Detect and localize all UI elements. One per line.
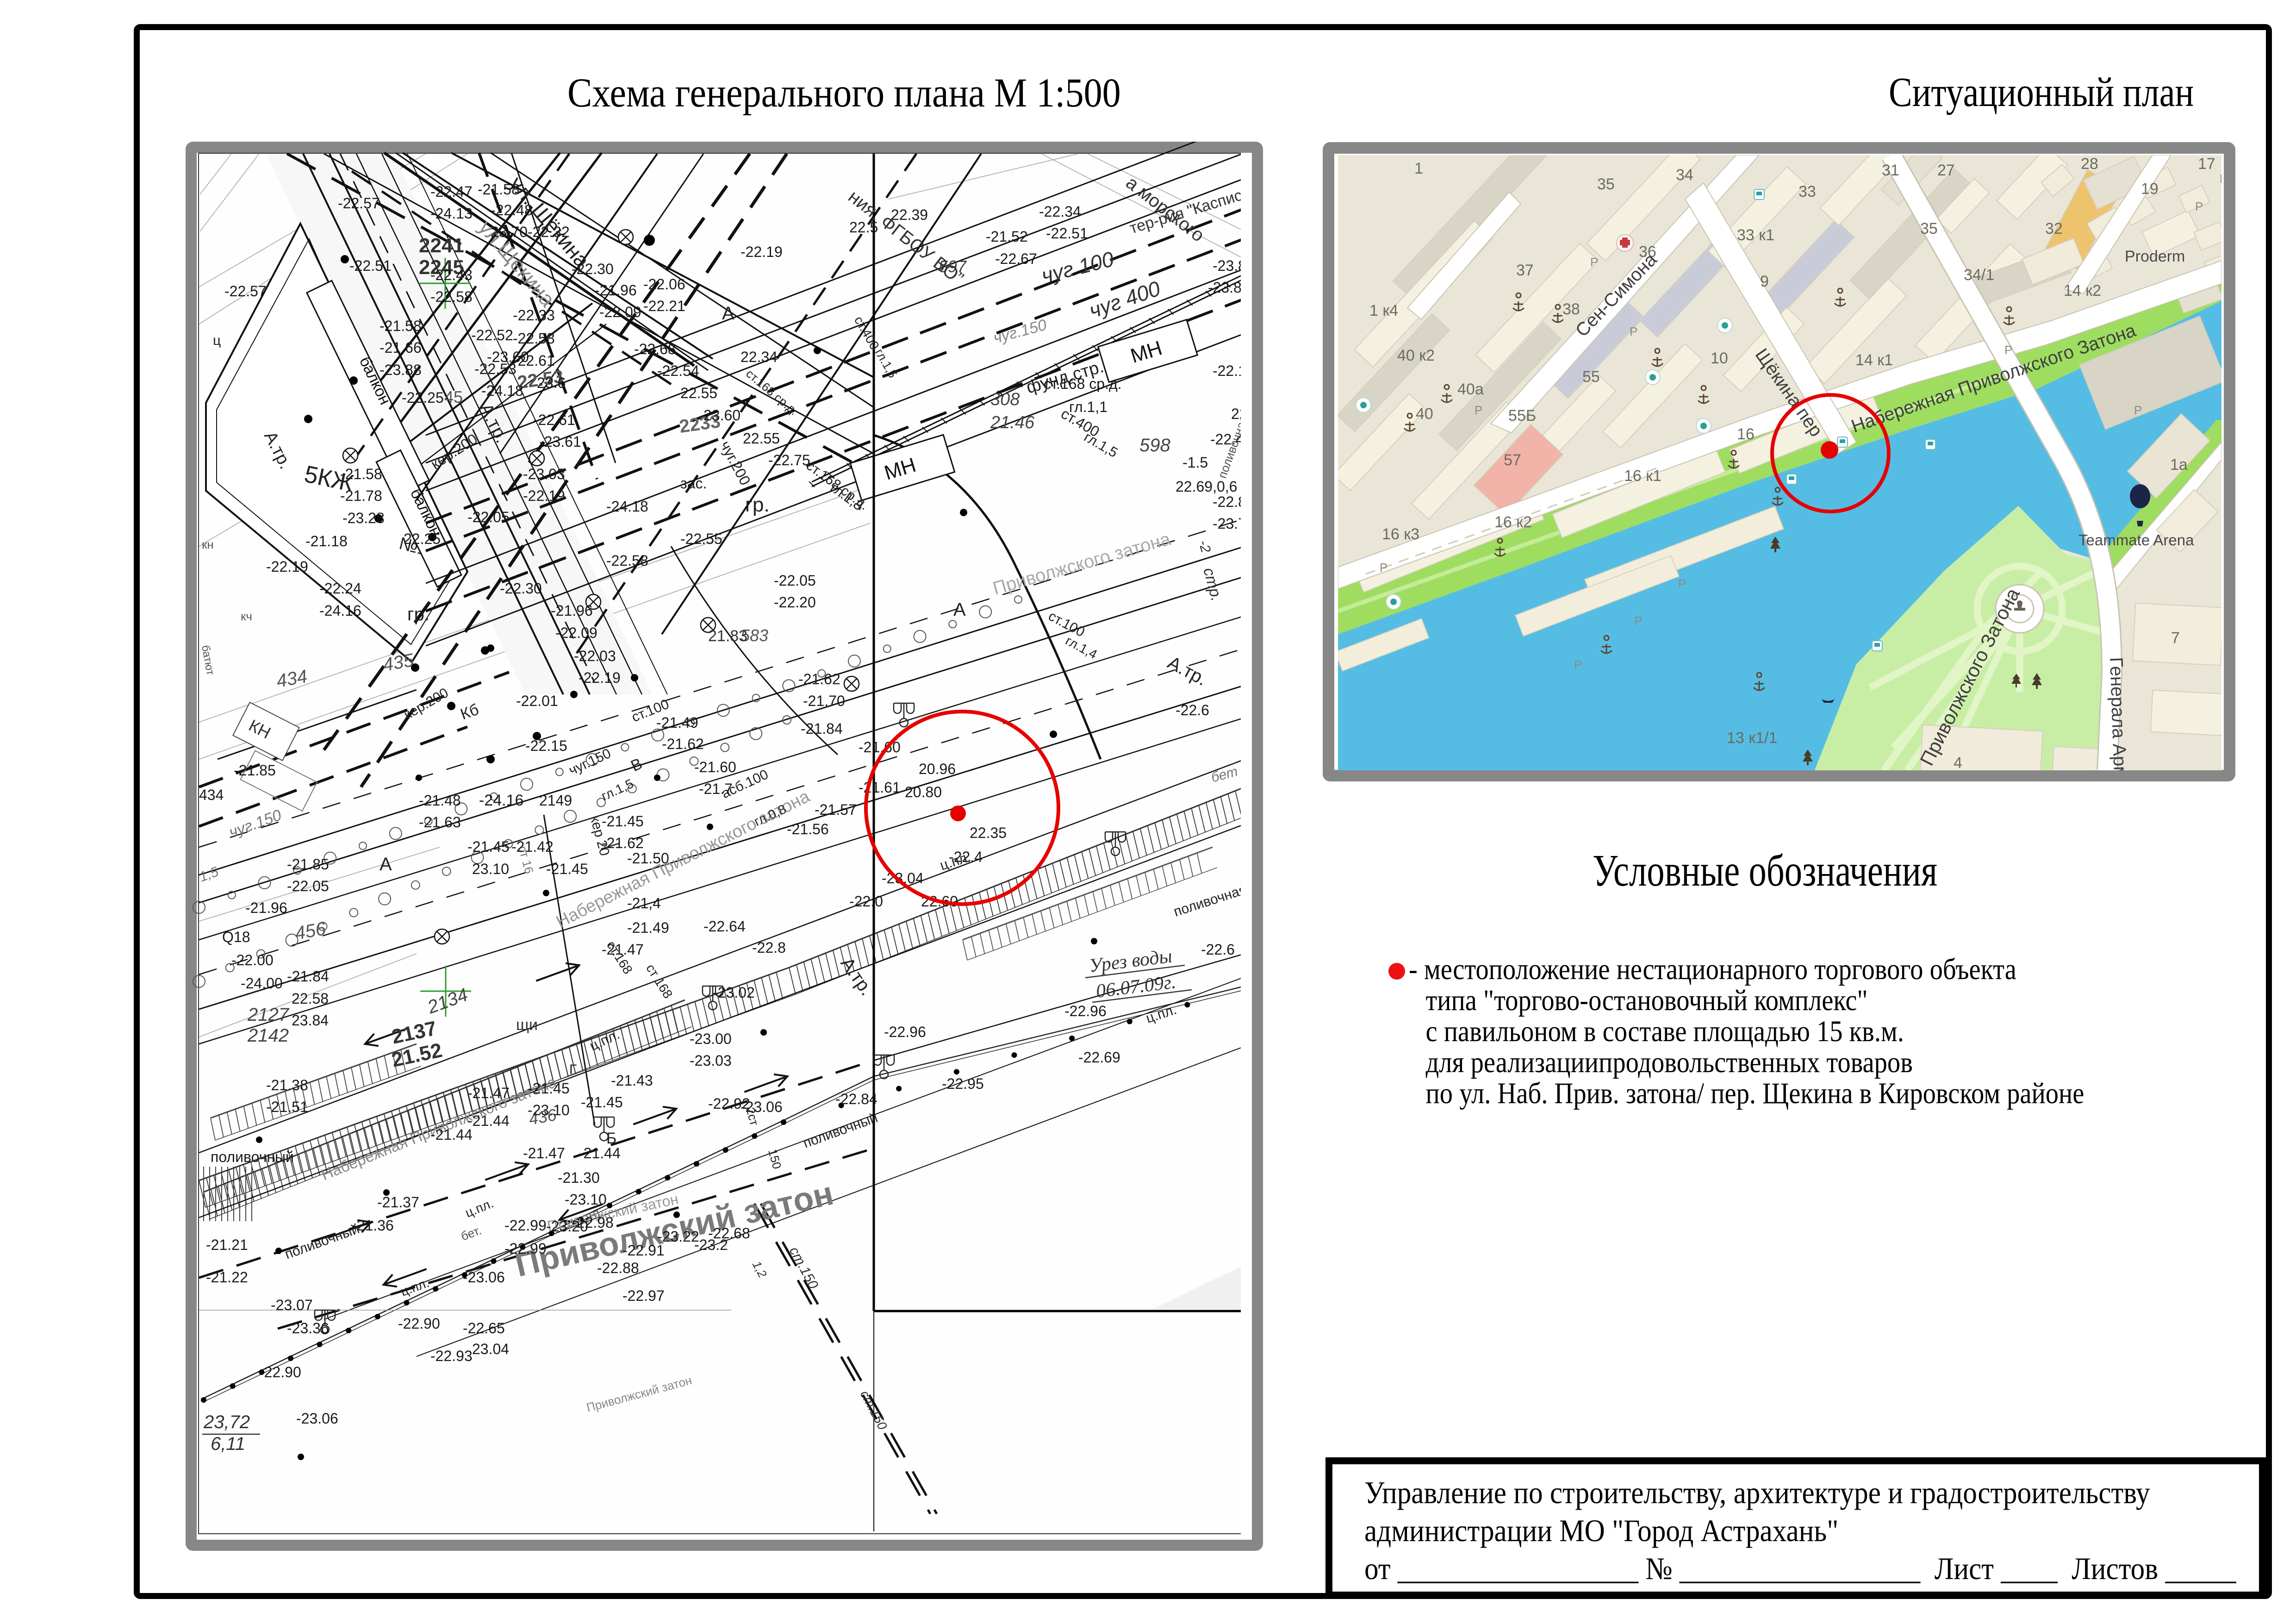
svg-text:P: P (2134, 403, 2142, 417)
svg-text:-21.45: -21.45 (528, 1080, 570, 1097)
svg-text:-22.67: -22.67 (995, 250, 1037, 267)
svg-text:22.35: 22.35 (970, 824, 1007, 841)
svg-text:31: 31 (1882, 162, 1899, 179)
svg-text:кн: кн (202, 537, 214, 551)
svg-text:-21.85: -21.85 (234, 762, 276, 779)
svg-text:13 к1/1: 13 к1/1 (1727, 729, 1777, 747)
svg-text:34/1: 34/1 (1964, 266, 1994, 284)
svg-text:P: P (2220, 172, 2221, 186)
svg-text:16 к3: 16 к3 (1382, 525, 1419, 543)
svg-text:434: 434 (199, 787, 224, 803)
svg-text:16 к2: 16 к2 (1494, 513, 1532, 531)
svg-text:-23.36: -23.36 (287, 1320, 329, 1337)
svg-text:поливочный: поливочный (211, 1149, 294, 1165)
svg-text:22.55: 22.55 (743, 430, 780, 447)
svg-text:1 к4: 1 к4 (1369, 302, 1398, 319)
svg-text:-21.66: -21.66 (380, 339, 422, 356)
svg-text:-21.50: -21.50 (627, 850, 669, 867)
svg-text:-22.58: -22.58 (430, 288, 473, 305)
svg-text:-23.06: -23.06 (740, 1099, 783, 1115)
svg-text:-23.77: -23.77 (1213, 515, 1241, 532)
svg-text:-21.42: -21.42 (511, 838, 554, 855)
svg-text:-21.45: -21.45 (581, 1094, 623, 1111)
svg-text:-21.62: -21.62 (662, 736, 704, 752)
svg-text:14 к2: 14 к2 (2064, 282, 2101, 300)
svg-text:33: 33 (1798, 183, 1816, 200)
svg-text:-22.21: -22.21 (643, 298, 685, 314)
svg-text:-21.45: -21.45 (546, 861, 588, 877)
svg-text:-21.56: -21.56 (787, 821, 829, 837)
svg-text:16: 16 (1737, 425, 1755, 443)
svg-text:27: 27 (1937, 162, 1955, 179)
svg-text:P: P (1574, 658, 1582, 672)
svg-text:-22.69: -22.69 (1078, 1049, 1120, 1066)
svg-text:-23.2: -23.2 (694, 1237, 728, 1253)
svg-text:-21.96: -21.96 (245, 899, 287, 916)
svg-text:-22.87: -22.87 (1213, 493, 1241, 510)
svg-text:гл.1,1: гл.1,1 (1069, 399, 1108, 415)
svg-text:-22.84: -22.84 (835, 1091, 877, 1107)
svg-text:-22.57: -22.57 (224, 283, 267, 300)
svg-text:-22.19: -22.19 (579, 669, 621, 686)
svg-text:33 к1: 33 к1 (1737, 226, 1774, 244)
svg-text:P: P (1634, 614, 1642, 628)
svg-text:-21.38: -21.38 (266, 1077, 308, 1093)
svg-text:-22.25: -22.25 (402, 389, 444, 406)
svg-text:ст.168 ср.д.: ст.168 ср.д. (1044, 375, 1122, 392)
svg-text:32: 32 (2045, 220, 2063, 237)
svg-text:35: 35 (1597, 175, 1615, 193)
svg-text:-21.58: -21.58 (478, 181, 520, 198)
svg-text:-21.43: -21.43 (611, 1072, 653, 1089)
svg-text:-21.18: -21.18 (305, 533, 348, 550)
svg-text:-22.19: -22.19 (523, 487, 565, 504)
svg-text:-22.90: -22.90 (259, 1364, 301, 1380)
svg-text:-21.62: -21.62 (602, 835, 644, 851)
svg-text:-22.30: -22.30 (500, 580, 542, 597)
svg-text:-21.37: -21.37 (377, 1194, 419, 1211)
svg-text:1а: 1а (2170, 456, 2188, 474)
svg-text:-22.51: -22.51 (1046, 225, 1088, 242)
svg-text:-21.7: -21.7 (699, 781, 733, 797)
svg-text:22.5: 22.5 (849, 219, 878, 236)
svg-text:P: P (1380, 561, 1388, 575)
svg-text:-21.52: -21.52 (986, 228, 1028, 245)
svg-text:-21.44: -21.44 (467, 1112, 510, 1129)
svg-text:23.60: 23.60 (703, 407, 740, 424)
svg-text:-22.51: -22.51 (349, 257, 392, 274)
svg-text:-21.57: -21.57 (815, 801, 857, 818)
svg-text:22.6: 22.6 (1231, 406, 1241, 422)
svg-text:22.39: 22.39 (891, 206, 928, 223)
svg-text:-22.43: -22.43 (430, 267, 473, 283)
svg-text:-21.85: -21.85 (287, 856, 329, 873)
svg-text:P: P (2195, 200, 2203, 213)
svg-text:гр.: гр. (407, 604, 429, 625)
svg-text:Teammate Arena: Teammate Arena (2078, 531, 2194, 549)
svg-text:-22.55: -22.55 (680, 531, 722, 547)
svg-text:21.46: 21.46 (990, 413, 1035, 432)
svg-text:-22.44: -22.44 (1210, 431, 1241, 448)
svg-text:-21.45: -21.45 (602, 813, 644, 830)
svg-text:23.6: 23.6 (537, 375, 566, 391)
svg-text:-22.57: -22.57 (338, 195, 380, 212)
svg-text:-22.52: -22.52 (471, 327, 513, 344)
svg-text:55Б: 55Б (1508, 407, 1536, 425)
svg-text:-23.20: -23.20 (546, 1218, 588, 1235)
svg-text:-22.96: -22.96 (1064, 1003, 1107, 1019)
svg-text:17: 17 (2198, 155, 2215, 173)
svg-text:-22.20: -22.20 (774, 594, 816, 611)
svg-text:-22.54: -22.54 (657, 362, 699, 379)
svg-text:23.10: 23.10 (472, 861, 509, 877)
svg-text:-22.61: -22.61 (513, 352, 555, 369)
svg-text:34: 34 (1676, 166, 1693, 184)
svg-text:23.04: 23.04 (472, 1341, 509, 1357)
svg-text:-22.96: -22.96 (884, 1024, 926, 1040)
svg-text:-22.24: -22.24 (319, 580, 361, 597)
svg-text:-21.58: -21.58 (380, 318, 422, 334)
svg-text:А: А (953, 600, 966, 620)
svg-text:-21.61: -21.61 (859, 779, 901, 796)
svg-text:-21,4: -21,4 (627, 895, 661, 912)
svg-text:598: 598 (1139, 435, 1170, 456)
svg-text:-21.84: -21.84 (287, 968, 329, 985)
svg-text:-1.5: -1.5 (1182, 454, 1208, 471)
svg-text:-24.00: -24.00 (241, 975, 283, 992)
svg-text:-22.32: -22.32 (528, 224, 570, 240)
svg-text:57: 57 (1504, 451, 1521, 469)
svg-text:22.25: 22.25 (404, 531, 441, 547)
svg-text:-22.09: -22.09 (555, 625, 597, 641)
svg-text:-21.49: -21.49 (656, 714, 698, 731)
svg-text:-22.34: -22.34 (1039, 203, 1081, 220)
svg-text:P: P (1630, 325, 1637, 338)
svg-text:-22.0: -22.0 (849, 893, 883, 910)
svg-text:-21.70: -21.70 (803, 693, 845, 709)
svg-text:-23.00: -23.00 (690, 1031, 732, 1047)
svg-text:23.70: 23.70 (491, 224, 528, 240)
svg-text:-21.60: -21.60 (694, 759, 736, 775)
svg-text:-22.61: -22.61 (533, 412, 575, 428)
svg-text:-22.6: -22.6 (1176, 702, 1209, 718)
svg-text:-23.88: -23.88 (380, 362, 422, 378)
svg-text:-23.61: -23.61 (539, 433, 581, 450)
svg-text:-24.13: -24.13 (430, 205, 473, 222)
svg-text:22.58: 22.58 (292, 990, 329, 1007)
svg-text:P: P (1590, 255, 1598, 269)
svg-text:-22.09: -22.09 (599, 304, 641, 320)
svg-text:-24.18: -24.18 (606, 498, 648, 515)
svg-text:55: 55 (1582, 368, 1600, 386)
svg-text:-22.58: -22.58 (513, 330, 555, 347)
svg-text:-21.51: -21.51 (266, 1099, 308, 1115)
svg-text:40 к2: 40 к2 (1397, 347, 1435, 364)
svg-text:щи: щи (516, 1016, 538, 1034)
svg-text:-24.16: -24.16 (319, 602, 361, 619)
svg-text:-23.22: -23.22 (657, 1228, 699, 1245)
svg-text:-23.10: -23.10 (565, 1191, 607, 1208)
svg-text:Proderm: Proderm (2125, 248, 2185, 265)
svg-text:-23.10: -23.10 (528, 1102, 570, 1118)
svg-text:40а: 40а (1457, 381, 1484, 398)
svg-text:20.96: 20.96 (919, 761, 956, 777)
svg-text:-22.95: -22.95 (942, 1075, 984, 1092)
svg-text:22.34: 22.34 (740, 349, 778, 365)
svg-text:-22.19: -22.19 (740, 244, 783, 260)
svg-text:-21.47: -21.47 (467, 1085, 510, 1101)
svg-text:-22.75: -22.75 (768, 452, 810, 468)
svg-text:-21.44: -21.44 (579, 1145, 621, 1162)
svg-text:-22.88: -22.88 (597, 1260, 639, 1276)
svg-text:9: 9 (1760, 273, 1769, 290)
svg-text:-21.62: -21.62 (798, 671, 840, 687)
svg-text:23.84: 23.84 (292, 1012, 329, 1029)
svg-text:-23.03: -23.03 (690, 1052, 732, 1069)
svg-text:2241: 2241 (419, 234, 464, 257)
svg-text:28: 28 (2081, 155, 2098, 173)
svg-text:22.55: 22.55 (680, 385, 717, 401)
svg-text:-21.63: -21.63 (419, 814, 461, 831)
svg-text:-22.00: -22.00 (231, 952, 274, 968)
svg-text:-21.96: -21.96 (595, 282, 637, 299)
svg-text:-23.88: -23.88 (1208, 279, 1241, 296)
svg-text:-22.99: -22.99 (504, 1217, 547, 1234)
svg-text:-21.30: -21.30 (558, 1169, 600, 1186)
svg-text:-22.6: -22.6 (1201, 941, 1235, 958)
svg-text:-21.47: -21.47 (602, 941, 644, 958)
svg-text:37: 37 (1516, 262, 1534, 279)
svg-text:А: А (722, 303, 734, 324)
svg-text:-21.49: -21.49 (627, 919, 669, 936)
svg-text:-23.8: -23.8 (1213, 257, 1241, 274)
svg-text:-22.19: -22.19 (266, 558, 308, 575)
svg-text:-22.8: -22.8 (752, 939, 786, 956)
svg-text:Q18: Q18 (222, 929, 250, 945)
svg-text:-23.28: -23.28 (342, 510, 385, 526)
svg-text:-23.03: -23.03 (523, 466, 565, 482)
svg-text:-22.05: -22.05 (287, 878, 329, 894)
svg-text:-24.18: -24.18 (481, 382, 523, 399)
svg-text:6,11: 6,11 (211, 1434, 245, 1454)
svg-text:-22.68: -22.68 (634, 341, 676, 357)
svg-text:2142: 2142 (247, 1025, 289, 1046)
svg-text:зас.: зас. (680, 475, 707, 492)
svg-text:-22.90: -22.90 (398, 1315, 440, 1332)
svg-text:-21.48: -21.48 (419, 792, 461, 809)
svg-text:-21.22: -21.22 (206, 1269, 248, 1286)
svg-text:-22.99: -22.99 (504, 1240, 547, 1257)
svg-text:-22.06: -22.06 (643, 276, 685, 293)
svg-text:-21.45: -21.45 (467, 838, 510, 855)
svg-text:-22.15: -22.15 (525, 737, 567, 754)
svg-text:40: 40 (1416, 405, 1433, 423)
svg-text:-22.01: -22.01 (516, 693, 558, 709)
svg-text:7: 7 (2171, 629, 2180, 647)
svg-text:-21.44: -21.44 (430, 1126, 473, 1143)
svg-text:-22.05: -22.05 (774, 572, 816, 589)
svg-text:-21.36: -21.36 (352, 1217, 394, 1234)
svg-text:-22.19: -22.19 (1213, 362, 1241, 379)
svg-text:14 к1: 14 к1 (1855, 351, 1893, 369)
svg-text:45: 45 (444, 387, 463, 406)
svg-text:Г: Г (569, 1062, 577, 1077)
svg-text:-21.47: -21.47 (523, 1145, 565, 1162)
svg-text:P: P (2004, 343, 2012, 357)
svg-text:ц: ц (213, 333, 221, 348)
svg-text:-22.58: -22.58 (606, 552, 648, 569)
svg-text:-22.05: -22.05 (467, 509, 510, 525)
svg-text:-21.58: -21.58 (340, 466, 382, 482)
svg-text:1: 1 (1414, 160, 1423, 177)
svg-text:P: P (1678, 577, 1686, 591)
svg-text:21.83: 21.83 (708, 627, 747, 645)
svg-text:-22.30: -22.30 (572, 261, 614, 277)
svg-text:А: А (380, 854, 392, 874)
svg-text:-23.06: -23.06 (296, 1410, 338, 1427)
svg-text:-21.84: -21.84 (801, 720, 843, 737)
svg-text:гр.: гр. (745, 493, 770, 516)
svg-text:-22.97: -22.97 (622, 1287, 665, 1304)
svg-text:308: 308 (990, 390, 1020, 409)
svg-text:19: 19 (2141, 180, 2159, 198)
svg-text:38: 38 (1562, 300, 1580, 318)
svg-text:-22.33: -22.33 (513, 307, 555, 324)
svg-text:-22.64: -22.64 (703, 918, 746, 935)
svg-text:-22.47: -22.47 (430, 183, 473, 200)
svg-text:-23.06: -23.06 (463, 1269, 505, 1286)
svg-text:-22.4: -22.4 (949, 849, 983, 865)
svg-text:-21.78: -21.78 (340, 487, 382, 504)
svg-text:35: 35 (1920, 220, 1938, 237)
svg-text:-22.53: -22.53 (474, 361, 516, 377)
svg-text:22.69,0,6: 22.69,0,6 (1176, 478, 1237, 495)
svg-text:-22.93: -22.93 (430, 1348, 473, 1364)
svg-text:-21.21: -21.21 (206, 1237, 248, 1253)
svg-text:-22.48: -22.48 (491, 202, 533, 219)
svg-text:-23.02: -23.02 (713, 984, 755, 1001)
svg-text:4: 4 (1954, 754, 1962, 770)
svg-text:кч: кч (241, 609, 252, 623)
svg-text:16 к1: 16 к1 (1624, 467, 1661, 485)
svg-text:-23.07: -23.07 (271, 1297, 313, 1313)
svg-text:23,72: 23,72 (203, 1412, 250, 1432)
svg-text:-21.96: -21.96 (551, 602, 593, 619)
svg-text:-24.16: -24.16 (479, 792, 523, 809)
svg-text:-22.03: -22.03 (574, 648, 616, 664)
svg-text:P: P (1475, 403, 1482, 417)
svg-text:2127: 2127 (247, 1005, 290, 1025)
svg-text:-22.65: -22.65 (463, 1320, 505, 1337)
svg-text:2149: 2149 (539, 792, 572, 809)
svg-text:20.80: 20.80 (905, 784, 942, 800)
svg-text:10: 10 (1711, 350, 1728, 367)
